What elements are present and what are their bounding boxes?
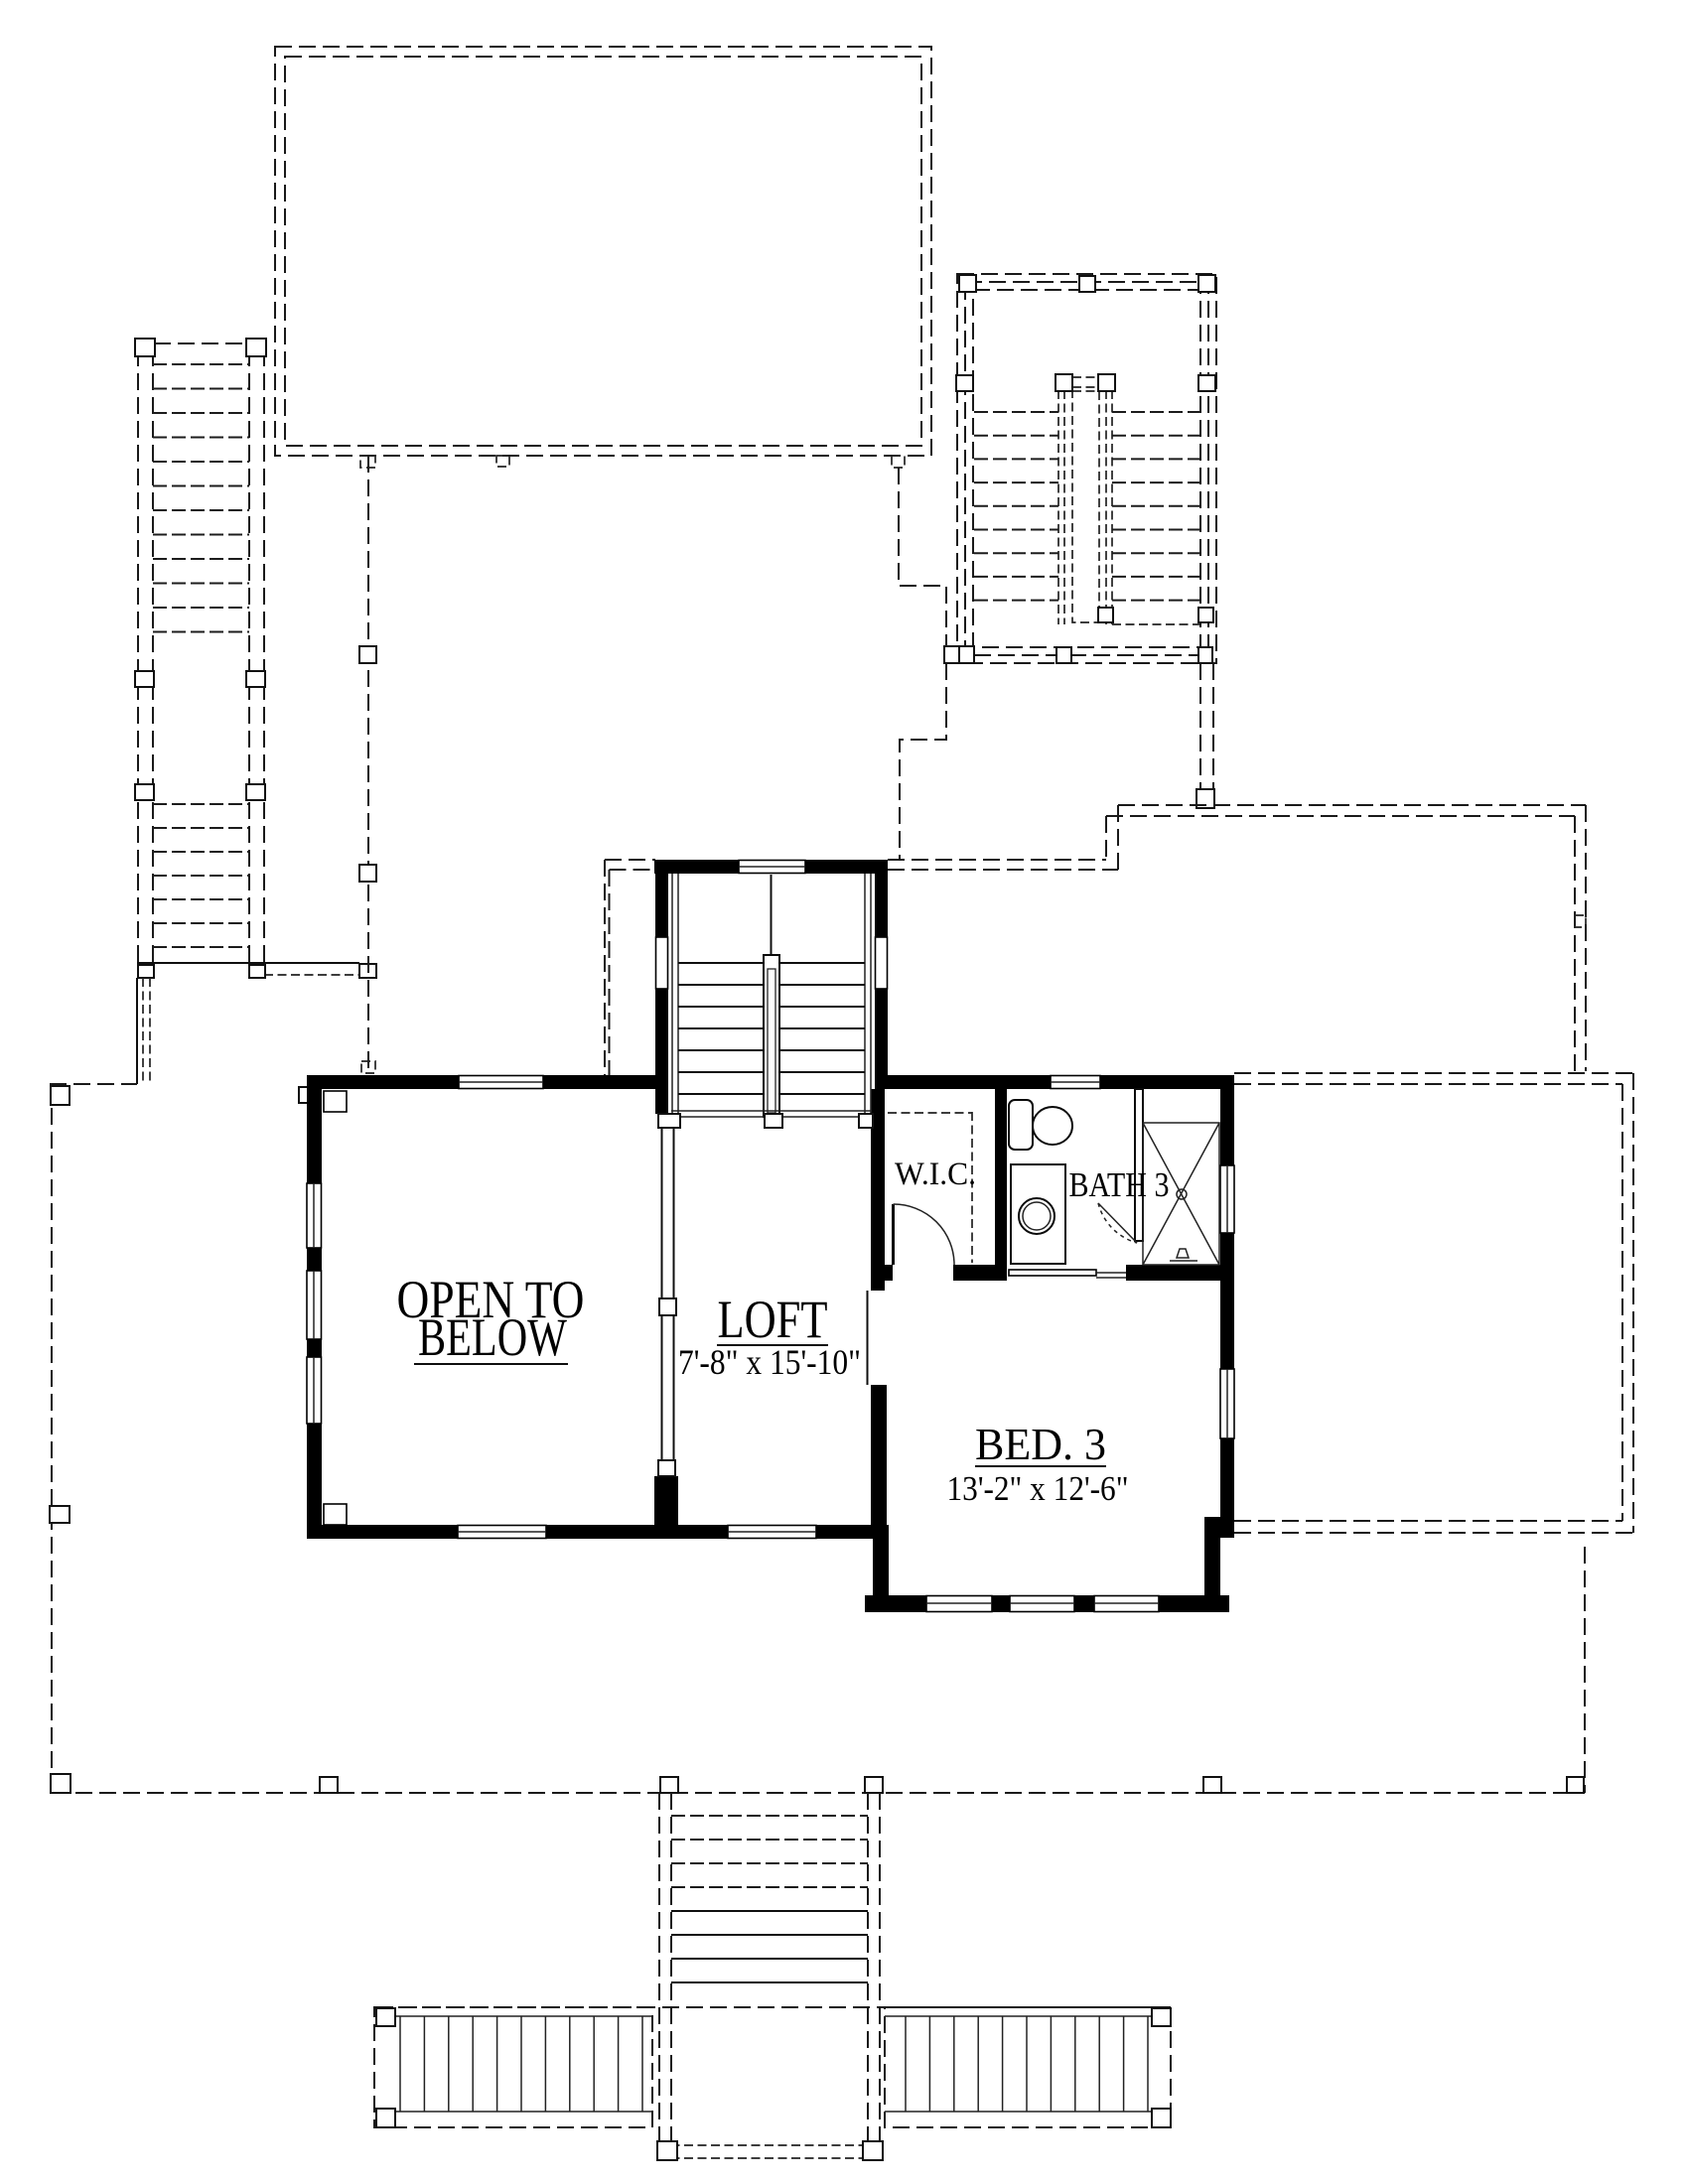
svg-text:BED. 3: BED. 3 bbox=[975, 1419, 1106, 1469]
svg-text:7'-8" x 15'-10": 7'-8" x 15'-10" bbox=[678, 1342, 861, 1382]
svg-text:BATH 3: BATH 3 bbox=[1069, 1165, 1170, 1204]
svg-text:13'-2" x 12'-6": 13'-2" x 12'-6" bbox=[947, 1469, 1129, 1508]
svg-text:BELOW: BELOW bbox=[418, 1307, 567, 1367]
svg-text:W.I.C.: W.I.C. bbox=[895, 1157, 976, 1192]
svg-text:LOFT: LOFT bbox=[718, 1290, 828, 1349]
